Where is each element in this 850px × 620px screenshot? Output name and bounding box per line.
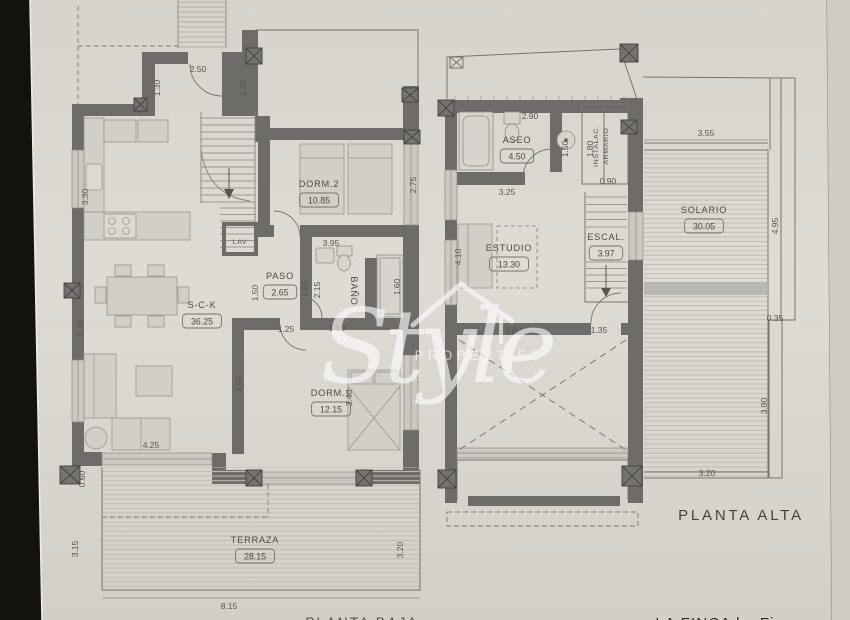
dimension-label: 5.30 xyxy=(75,319,85,336)
terrace xyxy=(102,467,420,598)
floorplan-drawing: DORM.210.85PASO2.65S-C-K36.25BAÑODORM.11… xyxy=(0,0,850,620)
dimension-label: 1.30 xyxy=(152,79,162,96)
toilet xyxy=(338,255,351,271)
area-badge: 4.50 xyxy=(508,152,525,162)
dimension-label: 1.30 xyxy=(238,79,248,96)
sofa xyxy=(84,354,116,418)
dimension-label: 1.65 xyxy=(300,280,310,297)
dimension-label: 1.50 xyxy=(560,140,570,157)
dimension-label: 3.55 xyxy=(698,128,715,138)
dimension-label: 1.80 xyxy=(585,140,595,157)
room-label: S-C-K xyxy=(187,300,216,310)
wall-segment xyxy=(628,100,643,212)
dimension-label: 1.50 xyxy=(250,284,260,301)
room-label: ESTUDIO xyxy=(486,243,532,253)
dimension-label: 1.25 xyxy=(278,324,295,334)
room-label: DORM.2 xyxy=(299,179,340,189)
watermark: Style PROPERTIES xyxy=(320,284,553,407)
dimension-label: 0.35 xyxy=(767,313,784,323)
dimension-label: 4.25 xyxy=(143,440,160,450)
dimension-label: 3.20 xyxy=(699,468,716,478)
wall-segment xyxy=(258,128,408,140)
wall-segment xyxy=(76,104,142,116)
dimension-label: 2.75 xyxy=(408,176,418,193)
dimension-label: 3.30 xyxy=(80,188,90,205)
bottom-right-caption-cropped: LA FINCA by Fi xyxy=(655,615,774,620)
room-label: ARMARIO xyxy=(603,127,610,164)
wall-segment xyxy=(72,244,84,454)
area-badge: 28.15 xyxy=(244,552,266,562)
wall-segment xyxy=(621,323,643,335)
wall-segment xyxy=(242,30,258,116)
dimension-label: 2.50 xyxy=(190,64,207,74)
wall-segment xyxy=(468,496,620,506)
daybed xyxy=(458,224,492,288)
bathtub xyxy=(459,112,493,170)
area-badge: 3.97 xyxy=(597,249,614,259)
area-badge: 13.30 xyxy=(498,260,520,270)
wall-segment xyxy=(72,452,102,466)
dimension-label: 3.90 xyxy=(759,397,769,414)
room-label: TERRAZA xyxy=(231,535,280,545)
dimension-label: 4.95 xyxy=(770,217,780,234)
wall-segment xyxy=(447,172,525,185)
planta-baja-title-cropped: PLANTA BAJA xyxy=(305,614,419,620)
area-badge: 10.85 xyxy=(308,196,330,206)
room-label: LAV xyxy=(233,239,248,246)
area-badge: 36.25 xyxy=(191,317,213,327)
wall-segment xyxy=(445,220,457,240)
dimension-label: 1.35 xyxy=(591,325,608,335)
dimension-label: 3.50 xyxy=(234,375,244,392)
room-label: PASO xyxy=(266,271,294,281)
planta-alta-title: PLANTA ALTA xyxy=(678,507,804,524)
area-badge: 30.05 xyxy=(693,222,715,232)
dimension-label: 0.90 xyxy=(600,176,617,186)
wall-segment xyxy=(232,318,280,330)
dimension-label: 4.10 xyxy=(453,248,463,265)
kitchen-sink xyxy=(86,164,102,190)
dimension-label: 3.25 xyxy=(499,187,516,197)
bath-sink xyxy=(316,248,334,263)
dimension-label: 2.90 xyxy=(522,111,539,121)
dimension-label: 3.20 xyxy=(395,541,405,558)
photo-of-floorplan: DORM.210.85PASO2.65S-C-K36.25BAÑODORM.11… xyxy=(0,0,850,620)
wall-segment xyxy=(300,225,408,237)
kitchen-stove xyxy=(104,214,136,238)
watermark-caps-text: PROPERTIES xyxy=(415,348,544,363)
dimension-label: 3.15 xyxy=(70,540,80,557)
wall-segment xyxy=(155,52,188,64)
room-label: SOLARIO xyxy=(681,205,727,215)
wall-segment xyxy=(403,430,419,470)
dimension-label: 3.95 xyxy=(323,238,340,248)
deck-band xyxy=(644,282,768,295)
dimension-label: 8.15 xyxy=(221,601,238,611)
armchair xyxy=(85,427,107,449)
wall-segment xyxy=(258,140,270,225)
room-label: ASEO xyxy=(503,135,532,145)
wall-segment xyxy=(258,225,274,237)
area-badge: 2.65 xyxy=(271,288,288,298)
dining-table xyxy=(107,277,177,315)
room-label: ESCAL. xyxy=(587,232,624,242)
coffee-table xyxy=(136,366,172,396)
